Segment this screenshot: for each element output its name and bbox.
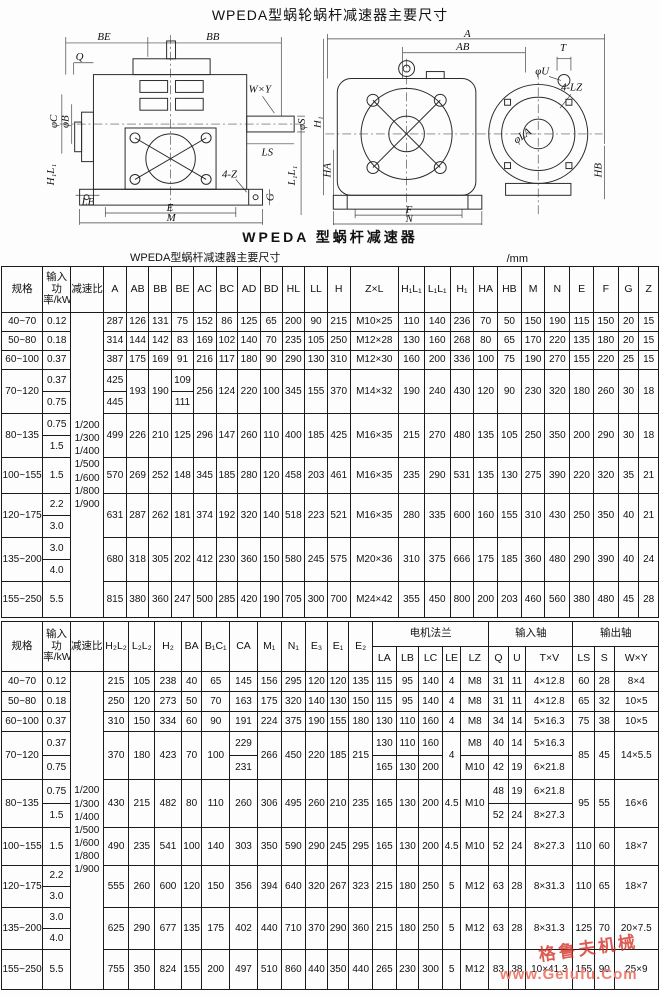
table-cell: 445 bbox=[104, 392, 127, 414]
table-cell: 130 bbox=[498, 458, 522, 494]
table-cell: M10×25 bbox=[350, 313, 398, 332]
table-cell: 5 bbox=[442, 908, 461, 950]
table-cell: 350 bbox=[593, 494, 618, 538]
table-cell: 130 bbox=[327, 692, 349, 712]
table-cell: 200 bbox=[419, 756, 443, 780]
table-cell: 230 bbox=[521, 370, 545, 414]
dim-label-phi-s: φS bbox=[296, 118, 308, 130]
spec-cell: 155~250 bbox=[2, 950, 43, 990]
table-cell: 65 bbox=[202, 672, 230, 692]
table-cell: 4×12.8 bbox=[526, 672, 573, 692]
table-cell: 6×21.8 bbox=[526, 780, 573, 804]
table-cell: 110 bbox=[260, 414, 282, 458]
table-cell: 14 bbox=[508, 732, 525, 756]
table-cell: 8×27.3 bbox=[526, 828, 573, 866]
table-cell: 100 bbox=[474, 351, 498, 370]
table-cell: 11 bbox=[508, 672, 525, 692]
table-cell: M14×32 bbox=[350, 370, 398, 414]
table-cell: 50 bbox=[498, 313, 522, 332]
power-cell: 0.18 bbox=[43, 332, 71, 351]
table-cell: 495 bbox=[281, 780, 306, 828]
table-cell: 19 bbox=[508, 780, 525, 804]
table-cell: 144 bbox=[126, 332, 149, 351]
ratio-value: 1/600 bbox=[71, 838, 103, 849]
dimension-lines bbox=[323, 34, 604, 225]
table-cell: 55 bbox=[595, 780, 615, 828]
table-cell: 480 bbox=[545, 538, 570, 582]
table-cell: 236 bbox=[450, 313, 474, 332]
dim-label-bb: BB bbox=[206, 31, 220, 43]
table-cell: 65 bbox=[595, 866, 615, 908]
table-cell: 287 bbox=[126, 494, 149, 538]
table-cell: 400 bbox=[282, 414, 305, 458]
table-cell: 135 bbox=[349, 672, 373, 692]
table-cell: 130 bbox=[396, 828, 419, 866]
table-cell: 175 bbox=[126, 351, 149, 370]
column-header: BB bbox=[149, 267, 172, 313]
spec-cell: 60~100 bbox=[2, 351, 43, 370]
table-cell: 180 bbox=[570, 370, 594, 414]
table-cell: 150 bbox=[349, 692, 373, 712]
table-cell: 560 bbox=[545, 582, 570, 618]
table-cell: 169 bbox=[149, 351, 172, 370]
table-cell: 360 bbox=[349, 908, 373, 950]
table-cell: 250 bbox=[521, 414, 545, 458]
ratio-value: 1/900 bbox=[71, 864, 103, 875]
table-cell: 290 bbox=[593, 414, 618, 458]
table-cell: 24 bbox=[639, 538, 659, 582]
table-cell: 126 bbox=[126, 313, 149, 332]
table-cell: 16×6 bbox=[614, 780, 658, 828]
power-cell: 4.0 bbox=[43, 560, 71, 582]
table-cell: 5 bbox=[442, 950, 461, 990]
power-cell: 3.0 bbox=[43, 516, 71, 538]
column-header: F bbox=[593, 267, 618, 313]
table-cell: 193 bbox=[126, 370, 149, 414]
table-cell: 140 bbox=[419, 692, 443, 712]
spec-cell: 50~80 bbox=[2, 692, 43, 712]
column-header: Z×L bbox=[350, 267, 398, 313]
table-cell: M12 bbox=[461, 950, 489, 990]
table-cell: 109 bbox=[172, 370, 194, 392]
table-cell: 245 bbox=[327, 828, 349, 866]
table-cell: 575 bbox=[327, 538, 350, 582]
table-cell: M8 bbox=[461, 712, 489, 732]
table-cell: 180 bbox=[396, 908, 419, 950]
table-cell: 460 bbox=[521, 582, 545, 618]
column-header: E bbox=[570, 267, 594, 313]
column-header: N₁ bbox=[281, 622, 306, 672]
table-cell: 40 bbox=[618, 494, 639, 538]
table-row: 40~700.121/2001/3001/4001/5001/6001/8001… bbox=[2, 313, 659, 332]
table-cell: 390 bbox=[545, 458, 570, 494]
table-cell: 45 bbox=[618, 582, 639, 618]
spec-cell: 50~80 bbox=[2, 332, 43, 351]
power-cell: 1.5 bbox=[43, 458, 71, 494]
table-cell: 285 bbox=[216, 582, 238, 618]
column-header: LA bbox=[373, 647, 397, 672]
table-cell: 450 bbox=[281, 732, 306, 780]
column-header: H₂ bbox=[155, 622, 182, 672]
table-cell: 52 bbox=[489, 804, 509, 828]
column-header: HB bbox=[498, 267, 522, 313]
table-cell: 360 bbox=[238, 538, 261, 582]
ratio-value: 1/500 bbox=[71, 825, 103, 836]
power-cell: 1.5 bbox=[43, 828, 71, 866]
table-cell: 4 bbox=[442, 672, 461, 692]
power-cell: 2.2 bbox=[43, 494, 71, 516]
table-cell: 18 bbox=[639, 414, 659, 458]
table-cell: 30 bbox=[618, 414, 639, 458]
table-cell: 115 bbox=[373, 692, 397, 712]
table-cell: 220 bbox=[238, 370, 261, 414]
ratio-value: 1/800 bbox=[71, 851, 103, 862]
table-cell: 10×5 bbox=[614, 712, 658, 732]
column-header: M₁ bbox=[257, 622, 281, 672]
ratio-value: 1/400 bbox=[71, 446, 103, 457]
table-cell: 318 bbox=[126, 538, 149, 582]
spec-cell: 100~155 bbox=[2, 828, 43, 866]
table-cell: 120 bbox=[306, 672, 328, 692]
table-cell: 140 bbox=[306, 692, 328, 712]
table-cell: 30 bbox=[618, 370, 639, 414]
table-cell: 320 bbox=[545, 370, 570, 414]
table-cell: 130 bbox=[399, 332, 425, 351]
table-cell: 521 bbox=[327, 494, 350, 538]
power-cell: 0.75 bbox=[43, 756, 71, 780]
table-cell: 8×27.3 bbox=[526, 804, 573, 828]
table-cell: 336 bbox=[450, 351, 474, 370]
power-cell: 3.0 bbox=[43, 887, 71, 908]
table-cell: 75 bbox=[172, 313, 194, 332]
table-cell: 360 bbox=[149, 582, 172, 618]
ratio-cell: 1/2001/3001/4001/5001/6001/8001/900 bbox=[71, 313, 104, 618]
column-header: E₂ bbox=[349, 622, 373, 672]
table-cell: 163 bbox=[230, 692, 258, 712]
column-header: Q bbox=[489, 647, 509, 672]
spec-cell: 135~200 bbox=[2, 538, 43, 582]
table-cell: 160 bbox=[424, 332, 450, 351]
table-cell: 666 bbox=[450, 538, 474, 582]
table-cell: 269 bbox=[126, 458, 149, 494]
table-cell: 310 bbox=[327, 351, 350, 370]
table-cell: 252 bbox=[149, 458, 172, 494]
unit-label: /mm bbox=[507, 253, 528, 265]
table-cell: 266 bbox=[257, 732, 281, 780]
ratio-value: 1/200 bbox=[71, 785, 103, 796]
table-cell: 152 bbox=[193, 313, 216, 332]
table-cell: 220 bbox=[593, 351, 618, 370]
table-cell: 110 bbox=[396, 712, 419, 732]
table-cell: 220 bbox=[545, 332, 570, 351]
spec-cell: 70~120 bbox=[2, 732, 43, 780]
table-cell: 440 bbox=[306, 950, 328, 990]
dim-label-le: LE bbox=[81, 196, 95, 208]
ratio-value: 1/300 bbox=[71, 799, 103, 810]
table-cell: 110 bbox=[573, 866, 595, 908]
spec-cell: 80~135 bbox=[2, 414, 43, 458]
table-cell: 314 bbox=[104, 332, 127, 351]
table-cell: 70 bbox=[260, 332, 282, 351]
table-cell: 65 bbox=[573, 692, 595, 712]
table-cell: 240 bbox=[424, 370, 450, 414]
table-cell: 705 bbox=[282, 582, 305, 618]
table-cell: 131 bbox=[149, 313, 172, 332]
table-cell: 390 bbox=[593, 538, 618, 582]
table-cell: 755 bbox=[103, 950, 129, 990]
table-cell: 290 bbox=[327, 908, 349, 950]
column-header: BE bbox=[172, 267, 194, 313]
table-cell: 5×16.3 bbox=[526, 732, 573, 756]
table-cell: 28 bbox=[595, 672, 615, 692]
spec-cell: 120~175 bbox=[2, 866, 43, 908]
table-cell: 334 bbox=[155, 712, 182, 732]
table-cell: 60 bbox=[573, 672, 595, 692]
table-cell: 150 bbox=[202, 866, 230, 908]
table-cell: 268 bbox=[450, 332, 474, 351]
table-cell: 115 bbox=[373, 672, 397, 692]
table-note: WPEDA型蜗杆减速器主要尺寸 /mm bbox=[0, 248, 660, 265]
table-cell: 200 bbox=[419, 828, 443, 866]
power-cell: 2.2 bbox=[43, 866, 71, 887]
dim-label-l1l1: L₁L₁ bbox=[286, 165, 298, 186]
table-cell: 185 bbox=[216, 458, 238, 494]
table-cell: 175 bbox=[257, 692, 281, 712]
table-cell: 28 bbox=[639, 582, 659, 618]
table-cell: M12×30 bbox=[350, 351, 398, 370]
table-cell: 8×31.3 bbox=[526, 866, 573, 908]
table-cell: 215 bbox=[103, 672, 129, 692]
table-cell: 290 bbox=[424, 458, 450, 494]
table-cell: 91 bbox=[172, 351, 194, 370]
table-cell: 190 bbox=[306, 712, 328, 732]
table-cell: 142 bbox=[149, 332, 172, 351]
ratio-value: 1/600 bbox=[71, 473, 103, 484]
table-cell: 70 bbox=[474, 313, 498, 332]
table-cell: 303 bbox=[230, 828, 258, 866]
column-header: LB bbox=[396, 647, 419, 672]
table-cell: 260 bbox=[306, 780, 328, 828]
table-cell: 120 bbox=[327, 672, 349, 692]
ratio-value: 1/300 bbox=[71, 433, 103, 444]
header-row: 规格输入功率/kW减速比H₂L₂L₂L₂H₂BAB₁C₁CAM₁N₁E₃E₁E₂… bbox=[2, 622, 659, 647]
dim-label-hb: HB bbox=[593, 163, 605, 179]
table-cell: 235 bbox=[282, 332, 305, 351]
table-cell: 531 bbox=[450, 458, 474, 494]
table-cell: 165 bbox=[373, 756, 397, 780]
table-row: 40~700.121/2001/3001/4001/5001/6001/8001… bbox=[2, 672, 659, 692]
table-cell: 215 bbox=[349, 732, 373, 780]
table-cell: 130 bbox=[305, 351, 328, 370]
table-cell: 18 bbox=[639, 370, 659, 414]
table-cell: 190 bbox=[399, 370, 425, 414]
column-header: H₂L₂ bbox=[103, 622, 129, 672]
column-header: E₁ bbox=[327, 622, 349, 672]
column-header: BC bbox=[216, 267, 238, 313]
table-cell: 190 bbox=[149, 370, 172, 414]
power-cell: 0.37 bbox=[43, 712, 71, 732]
table-cell: M10 bbox=[461, 756, 489, 780]
table-cell: 350 bbox=[257, 828, 281, 866]
table-cell: 350 bbox=[545, 414, 570, 458]
ratio-value: 1/200 bbox=[71, 420, 103, 431]
column-header: T×V bbox=[526, 647, 573, 672]
table-cell: 290 bbox=[306, 828, 328, 866]
power-cell: 1.5 bbox=[43, 436, 71, 458]
table-cell: M12 bbox=[461, 866, 489, 908]
table-cell: 235 bbox=[349, 780, 373, 828]
table-cell: 499 bbox=[104, 414, 127, 458]
table-cell: 48 bbox=[489, 780, 509, 804]
table-cell: 497 bbox=[230, 950, 258, 990]
table-cell: 370 bbox=[327, 370, 350, 414]
table-cell: 60 bbox=[595, 828, 615, 866]
table-cell: 200 bbox=[474, 582, 498, 618]
table-cell: 105 bbox=[129, 672, 155, 692]
table-cell: M8 bbox=[461, 732, 489, 756]
table-cell: 21 bbox=[639, 458, 659, 494]
ratio-cell: 1/2001/3001/4001/5001/6001/8001/900 bbox=[70, 672, 103, 990]
table-cell: 430 bbox=[103, 780, 129, 828]
table-cell: 600 bbox=[155, 866, 182, 908]
table-cell: 800 bbox=[450, 582, 474, 618]
column-header: W×Y bbox=[614, 647, 658, 672]
table-cell: 70 bbox=[202, 692, 230, 712]
table-cell: 175 bbox=[474, 538, 498, 582]
table-cell: 102 bbox=[216, 332, 238, 351]
housing-outline bbox=[333, 61, 587, 209]
table-cell: 15 bbox=[639, 332, 659, 351]
column-header: Z bbox=[639, 267, 659, 313]
table-cell: 140 bbox=[238, 332, 261, 351]
table-cell: 215 bbox=[327, 313, 350, 332]
table-cell: 156 bbox=[257, 672, 281, 692]
table-cell: 150 bbox=[129, 712, 155, 732]
table-cell: M24×42 bbox=[350, 582, 398, 618]
table-cell: 80 bbox=[474, 332, 498, 351]
table-cell: 140 bbox=[260, 494, 282, 538]
table-cell: 260 bbox=[593, 370, 618, 414]
table-cell: 394 bbox=[257, 866, 281, 908]
table-cell: 4 bbox=[442, 732, 461, 780]
table-cell: 423 bbox=[155, 732, 182, 780]
table-cell: 631 bbox=[104, 494, 127, 538]
table-cell: 124 bbox=[216, 370, 238, 414]
ratio-value: 1/400 bbox=[71, 812, 103, 823]
dim-label-g: G bbox=[264, 193, 276, 201]
spec-cell: 40~70 bbox=[2, 672, 43, 692]
table-cell: 155 bbox=[498, 494, 522, 538]
table-cell: 40 bbox=[489, 732, 509, 756]
table-cell: 458 bbox=[282, 458, 305, 494]
power-cell: 5.5 bbox=[43, 950, 71, 990]
table-cell: 310 bbox=[521, 494, 545, 538]
table-cell: 10×5 bbox=[614, 692, 658, 712]
table-cell: 320 bbox=[306, 866, 328, 908]
table-cell: 90 bbox=[498, 370, 522, 414]
table-cell: 180 bbox=[593, 332, 618, 351]
table-cell: 320 bbox=[593, 458, 618, 494]
dimensions-table-1: 规格输入功率/kW减速比AABBBBEACBCADBDHLLLHZ×LH₁L₁L… bbox=[1, 266, 659, 618]
group-header-input-shaft: 输入轴 bbox=[489, 622, 573, 647]
table-cell: 180 bbox=[349, 712, 373, 732]
table-cell: 270 bbox=[545, 351, 570, 370]
power-cell: 3.0 bbox=[43, 908, 71, 929]
column-header: 减速比 bbox=[70, 622, 103, 672]
table-cell: 95 bbox=[396, 692, 419, 712]
dimensions-table-2: 规格输入功率/kW减速比H₂L₂L₂L₂H₂BAB₁C₁CAM₁N₁E₃E₁E₂… bbox=[1, 621, 659, 990]
table-cell: 70 bbox=[181, 732, 202, 780]
table-cell: 100 bbox=[181, 828, 202, 866]
spec-cell: 100~155 bbox=[2, 458, 43, 494]
table-cell: 4 bbox=[442, 712, 461, 732]
table-cell: 235 bbox=[129, 828, 155, 866]
column-header: CA bbox=[230, 622, 258, 672]
table-cell: 230 bbox=[396, 950, 419, 990]
power-cell: 4.0 bbox=[43, 929, 71, 950]
table-cell: M10 bbox=[461, 780, 489, 828]
table-cell: M8 bbox=[461, 672, 489, 692]
table-cell: 280 bbox=[399, 494, 425, 538]
housing-outline bbox=[75, 41, 294, 205]
column-header: BA bbox=[181, 622, 202, 672]
table-cell: 200 bbox=[570, 414, 594, 458]
table-cell: 680 bbox=[104, 538, 127, 582]
power-cell: 5.5 bbox=[43, 582, 71, 618]
table-cell: 15 bbox=[639, 351, 659, 370]
dim-label-t: T bbox=[560, 42, 567, 54]
dim-label-phi-c: φC bbox=[48, 114, 60, 128]
table-cell: 860 bbox=[281, 950, 306, 990]
table-cell: 135 bbox=[474, 458, 498, 494]
table-cell: 160 bbox=[419, 712, 443, 732]
table-cell: 275 bbox=[521, 458, 545, 494]
table-cell: 4.5 bbox=[442, 828, 461, 866]
table-cell: 280 bbox=[238, 458, 261, 494]
table-cell: 130 bbox=[373, 712, 397, 732]
table-cell: 480 bbox=[450, 414, 474, 458]
table-cell: 20 bbox=[618, 313, 639, 332]
table-cell: 14×5.5 bbox=[614, 732, 658, 780]
table-cell: 190 bbox=[260, 582, 282, 618]
table-cell: 430 bbox=[450, 370, 474, 414]
table-cell: 200 bbox=[419, 780, 443, 828]
table-cell: 155 bbox=[327, 712, 349, 732]
table-cell: 180 bbox=[396, 866, 419, 908]
table-cell: 110 bbox=[573, 828, 595, 866]
power-cell: 3.0 bbox=[43, 538, 71, 560]
table-cell: 120 bbox=[474, 370, 498, 414]
table-cell: 100 bbox=[202, 732, 230, 780]
table-cell: 5×16.3 bbox=[526, 712, 573, 732]
table-cell: 150 bbox=[521, 313, 545, 332]
dim-label-4z: 4-Z bbox=[222, 168, 238, 180]
table-cell: 31 bbox=[489, 672, 509, 692]
power-cell: 0.18 bbox=[43, 692, 71, 712]
table-cell: 100 bbox=[260, 370, 282, 414]
table-cell: 380 bbox=[126, 582, 149, 618]
column-header: L₂L₂ bbox=[129, 622, 155, 672]
table-cell: 375 bbox=[281, 712, 306, 732]
table-cell: 155 bbox=[570, 351, 594, 370]
table-cell: 287 bbox=[104, 313, 127, 332]
dim-label-q: Q bbox=[76, 51, 84, 63]
table-cell: 63 bbox=[489, 866, 509, 908]
table-cell: 490 bbox=[103, 828, 129, 866]
table-cell: 210 bbox=[149, 414, 172, 458]
table-cell: 700 bbox=[327, 582, 350, 618]
ratio-value: 1/800 bbox=[71, 486, 103, 497]
